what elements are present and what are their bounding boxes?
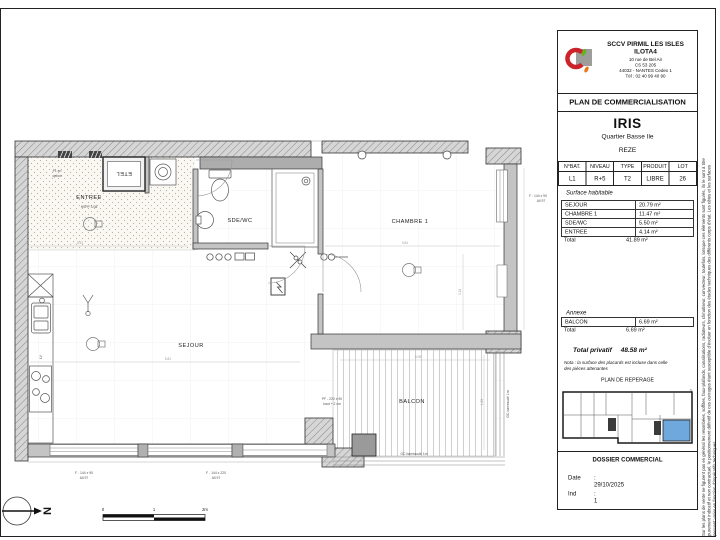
etel-label: ETEL: [116, 170, 132, 176]
lot-value-niveau: R+5: [586, 172, 614, 186]
outlet-icon: [207, 254, 213, 260]
wall-above-balcony: [311, 334, 521, 349]
key-plan: [562, 389, 693, 447]
project-name: IRIS: [558, 116, 697, 132]
basin-tap: [196, 216, 201, 224]
total-privatif-value: 48.58 m²: [621, 346, 647, 354]
reperage-title: PLAN DE REPERAGE: [558, 377, 697, 383]
surface-row-label: ENTREE: [562, 228, 636, 237]
total-privatif-row: Total privatif 48.58 m²: [573, 346, 647, 354]
document-title: PLAN DE COMMERCIALISATION: [558, 93, 697, 112]
surface-row-value: 20.79 m²: [636, 201, 694, 210]
project-district: Quartier Basse Ile: [558, 133, 697, 141]
dossier-date-value: : 29/10/2025: [594, 474, 624, 488]
scale-2m: 2m: [202, 507, 208, 512]
window-jamb: [232, 444, 243, 457]
surface-total-value: 41.89 m²: [626, 237, 648, 243]
surface-total-label: Total: [564, 237, 626, 243]
lot-value-type: T2: [614, 172, 642, 186]
electrical-panel-icon: [271, 278, 285, 295]
partition-sdewc-left: [193, 169, 198, 249]
annexe-total-label: Total: [564, 327, 626, 333]
ann-hsfp: HSFP 3.08: [81, 205, 98, 209]
partition-sdewc-bottom: [193, 243, 268, 249]
annexe-title: Annexe: [566, 309, 586, 316]
dossier-block: DOSSIER COMMERCIAL Date : 29/10/2025 Ind…: [558, 451, 697, 511]
surface-row-label: SEJOUR: [562, 201, 636, 210]
company-addr-4: Tél : 02 40 99 40 90: [596, 74, 695, 80]
dim-entree: 3.37: [77, 241, 84, 245]
window-chambre-2: [497, 265, 507, 297]
lot-header-type: TYPE: [614, 162, 642, 172]
bottom-windows: [28, 444, 335, 462]
key-plan-core-1: [608, 418, 616, 431]
annexe-table: BALCON6.69 m²: [561, 317, 694, 327]
room-label-entree: ENTREE: [76, 195, 101, 201]
company-name-1: SCCV PIRMIL LES ISLES: [596, 40, 695, 48]
ann-gc-right: GC barreaudé 1m: [506, 390, 510, 417]
dim-sejour: 5.81: [165, 357, 172, 361]
ann-window-bottom2-2: All 97: [212, 476, 221, 480]
window-chambre: [497, 170, 508, 222]
annexe-row-label: BALCON: [562, 318, 636, 327]
wall-corner-topright: [486, 148, 521, 164]
dossier-ind-value: : 1: [594, 490, 597, 504]
tv-socket-icon: [246, 253, 255, 260]
room-label-chambre: CHAMBRE 1: [392, 219, 429, 225]
surface-row-label: SDE/WC: [562, 219, 636, 228]
lot-value-bat: L1: [559, 172, 587, 186]
project-block: IRIS Quartier Basse Ile REZE: [558, 111, 697, 162]
surface-row-value: 5.50 m²: [636, 219, 694, 228]
lot-value-lot: 26: [669, 172, 697, 186]
lot-header-bat: N°BAT.: [559, 162, 587, 172]
ann-pf-2: haut + 2 cm: [323, 402, 341, 406]
ceiling-vent-2: [443, 151, 451, 159]
tel-socket-icon: [235, 253, 244, 260]
lot-table: N°BAT. NIVEAU TYPE PRODUIT LOT L1 R+5 T2…: [558, 161, 697, 186]
wall-balcony-corner-left-a: [305, 418, 333, 448]
room-label-balcon: BALCON: [399, 399, 425, 405]
room-label-sdewc: SDE/WC: [227, 218, 252, 224]
north-letter: N: [41, 507, 53, 515]
lot-header-produit: PRODUIT: [641, 162, 669, 172]
etel-duct: ETEL: [103, 157, 145, 191]
surface-row-value: 4.14 m²: [636, 228, 694, 237]
ann-pl-1: PL en: [53, 169, 62, 173]
logo-orange-leaf: [583, 66, 589, 73]
company-name-2: ILOTA4: [596, 48, 695, 56]
ann-window-right-1: F : 144 x 90: [529, 194, 547, 198]
ann-window-bottom2-1: F - 144 x 220: [206, 471, 226, 475]
window-sejour-2: [148, 445, 232, 456]
key-plan-core-2: [654, 421, 661, 435]
partition-chambre-upper: [318, 169, 323, 254]
disclaimer-line-3: peuvent varier en fonction d'impératifs …: [712, 7, 718, 536]
partition-chambre-lower: [318, 294, 323, 334]
company-block: SCCV PIRMIL LES ISLES ILOTA4 10 rue de B…: [558, 31, 697, 93]
title-block: SCCV PIRMIL LES ISLES ILOTA4 10 rue de B…: [557, 30, 698, 510]
dim-balcon-h: 1.85: [480, 399, 484, 406]
project-city: REZE: [558, 146, 697, 154]
ceiling-vent-1: [358, 151, 366, 159]
ann-window-right-2: All 97: [537, 199, 546, 203]
scale-0: 0: [102, 507, 105, 512]
dossier-title: DOSSIER COMMERCIAL: [558, 456, 697, 463]
key-plan-marker: [690, 390, 692, 392]
ann-window-bottom1-1: F - 144 x 90: [75, 471, 93, 475]
company-info: SCCV PIRMIL LES ISLES ILOTA4 10 rue de B…: [596, 40, 695, 79]
dim-balcon-w: 3.05: [415, 355, 422, 359]
lot-value-produit: LIBRE: [641, 172, 669, 186]
annexe-total-row: Total 6.69 m²: [558, 327, 697, 333]
company-logo: [564, 46, 594, 76]
ann-pf-1: PF - 220 x 90: [322, 397, 342, 401]
ann-window-bottom1-2: All 97: [80, 476, 89, 480]
outlet-icon: [321, 254, 327, 260]
dim-chambre-w: 3.81: [402, 241, 409, 245]
wall-sdewc-top: [200, 157, 322, 169]
surface-total-row: Total 41.89 m²: [558, 237, 697, 243]
dim-chambre-h: 3.18: [458, 289, 462, 296]
room-label-sejour: SEJOUR: [178, 343, 203, 349]
ann-gc-bottom: GC barreaudé 1m: [400, 452, 427, 456]
dossier-date-label: Date: [568, 474, 581, 481]
washing-machine: [150, 159, 176, 185]
window-sejour-1: [50, 445, 138, 456]
key-plan-highlighted-unit: [663, 420, 690, 441]
nota-line-2: des pièces attenantes: [564, 366, 693, 372]
total-privatif-label: Total privatif: [573, 346, 612, 354]
annexe-total-value: 6.69 m²: [626, 327, 645, 333]
scale-bar: 0 1 2m: [102, 507, 209, 521]
nota-text: Nota : la surface des placards est inclu…: [564, 360, 693, 372]
surface-row-label: CHAMBRE 1: [562, 210, 636, 219]
surface-row-value: 11.47 m²: [636, 210, 694, 219]
surface-habitable-title: Surface habitable: [566, 189, 613, 196]
lot-header-niveau: NIVEAU: [586, 162, 614, 172]
north-arrow: N: [2, 497, 53, 525]
lot-header-lot: LOT: [669, 162, 697, 172]
wall-left: [15, 157, 28, 461]
toilet-bowl: [212, 179, 229, 201]
surface-habitable-table: SEJOUR20.79 m² CHAMBRE 111.47 m² SDE/WC5…: [561, 200, 694, 237]
window-jamb: [138, 444, 148, 457]
annexe-row-value: 6.69 m²: [636, 318, 694, 327]
outlet-icon: [225, 254, 231, 260]
outlet-icon: [216, 254, 222, 260]
dossier-ind-label: Ind: [568, 490, 576, 497]
legal-disclaimer: Sur les plans de vente ne figurent pas e…: [701, 7, 718, 536]
ann-pl-2: option: [52, 174, 61, 178]
structural-column: [352, 434, 376, 456]
scale-1: 1: [153, 507, 156, 512]
